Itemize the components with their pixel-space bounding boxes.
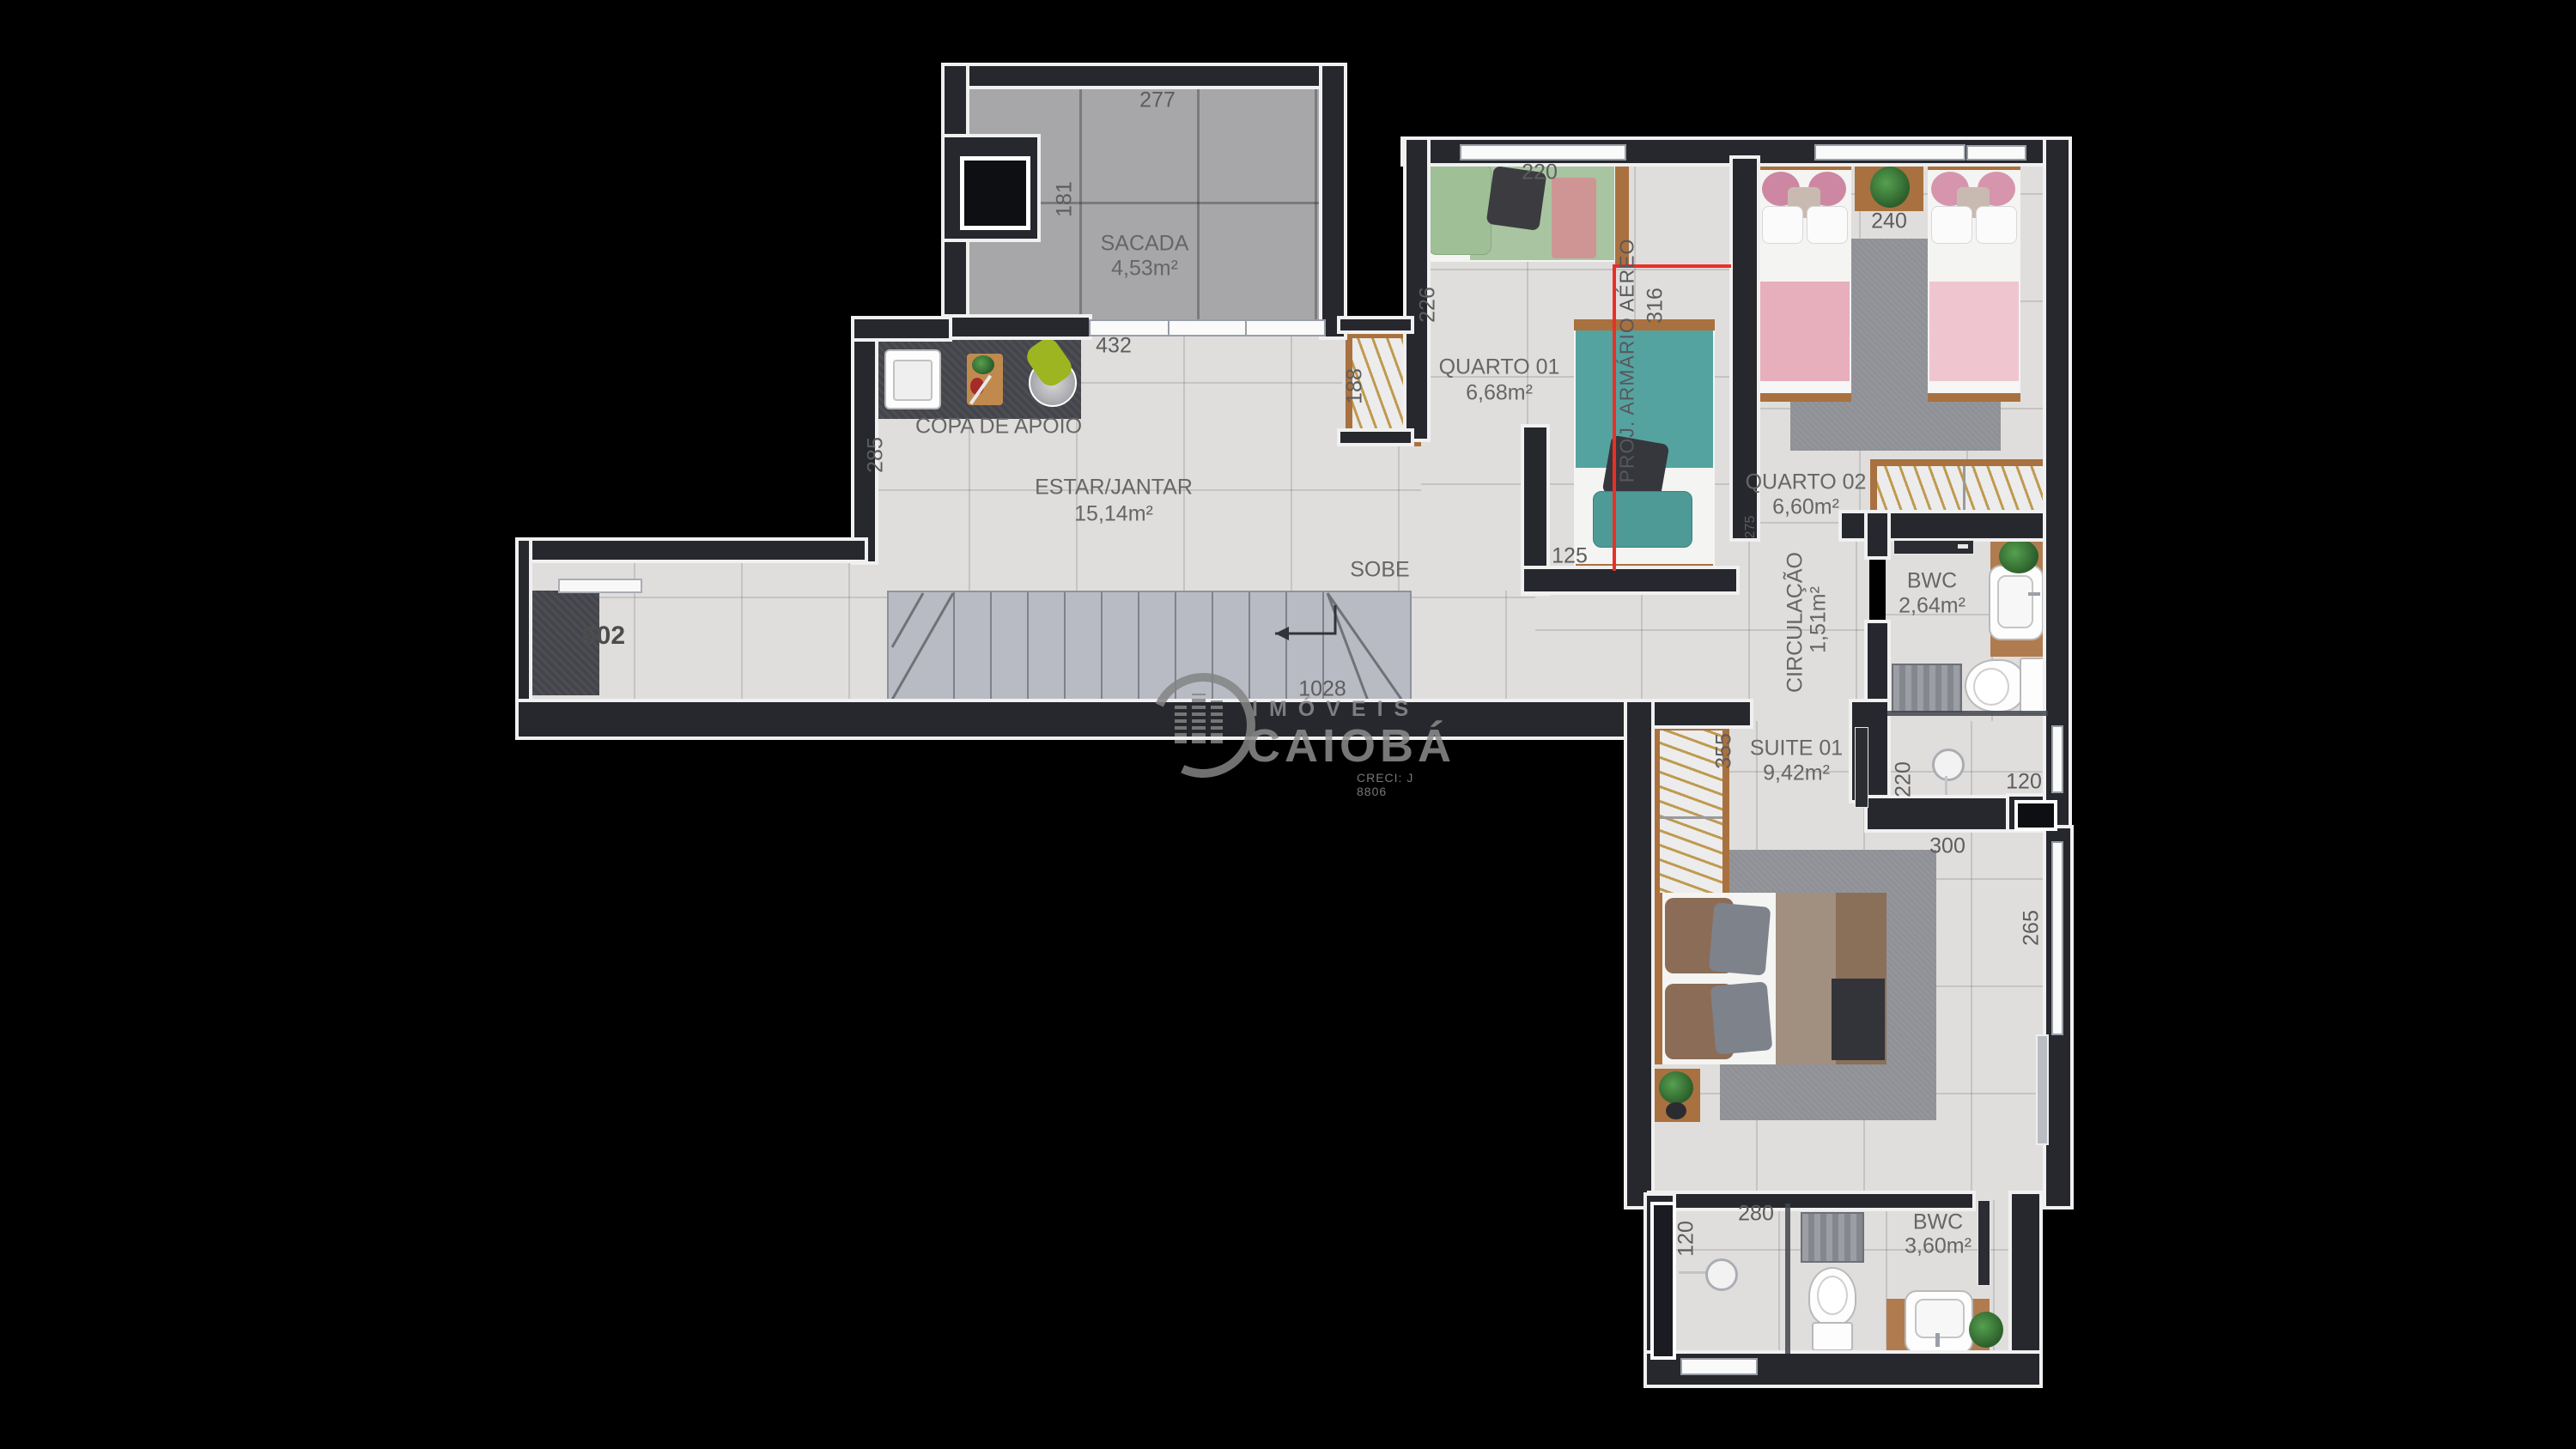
wall-balcony-top	[945, 66, 1344, 86]
watermark: IMÓVEIS CAIOBÁ CRECI: J 8806	[1151, 670, 1443, 781]
wall-bathroom1-left-upper	[1868, 513, 1887, 556]
bedroom2-window-2	[1966, 145, 2026, 161]
watermark-buildings-icon	[1192, 694, 1206, 743]
label-circulacao-name: CIRCULAÇÃO	[1783, 552, 1808, 693]
wall-copa-top	[854, 319, 949, 338]
dim-bwc2-width: 280	[1738, 1202, 1774, 1227]
bathroom2-window-left	[1650, 1202, 1676, 1360]
wall-suite-left	[1627, 702, 1651, 1206]
watermark-creci: CRECI: J 8806	[1357, 771, 1443, 798]
bedroom1-window	[1460, 144, 1626, 161]
bathroom2-sink-icon	[1905, 1290, 1973, 1354]
wall-bedroom1-lower-left	[1524, 427, 1546, 592]
bedroom2-bed-right	[1928, 161, 2020, 402]
bedroom2-window	[1814, 144, 1965, 161]
shaft-niche	[2014, 800, 2057, 831]
dim-sacada-door: 432	[1096, 334, 1132, 359]
label-circulacao-area: 1,51m²	[1807, 586, 1832, 653]
bathroom2-shower-glass	[1785, 1203, 1790, 1354]
wall-hall-top	[520, 541, 865, 560]
bathroom1-mat	[1892, 664, 1962, 712]
watermark-buildings-icon	[1175, 704, 1187, 743]
label-suite-name: SUITE 01	[1750, 737, 1843, 761]
dim-quarto2-door: 275	[1743, 516, 1759, 539]
herbs-on-board	[972, 355, 994, 374]
wall-closet-top	[1340, 319, 1411, 330]
suite-plant-icon	[1659, 1071, 1693, 1104]
suite-double-bed	[1651, 893, 1886, 1064]
bathroom2-toilet-tank	[1812, 1322, 1853, 1351]
label-estar-area: 15,14m²	[1074, 502, 1153, 527]
wall-bathroom1-left-lower	[1868, 623, 1887, 704]
dim-quarto2-beds: 240	[1871, 209, 1907, 234]
watermark-brand-top: IMÓVEIS	[1252, 697, 1419, 722]
bathroom2-plant-icon	[1969, 1312, 2003, 1348]
label-quarto1-name: QUARTO 01	[1439, 355, 1560, 380]
bathroom2-shower-icon	[1705, 1258, 1738, 1291]
balcony-duct-niche	[960, 156, 1030, 230]
dim-sacada-width: 277	[1139, 88, 1176, 113]
dim-bwc2-shower-width: 120	[1674, 1221, 1699, 1257]
label-sobe: SOBE	[1350, 558, 1409, 583]
dim-quarto1-depth: 226	[1416, 287, 1441, 323]
bathroom1-toilet-tank	[2020, 658, 2047, 714]
suite-window	[2051, 841, 2063, 1035]
watermark-brand-main: CAIOBÁ	[1247, 719, 1455, 773]
label-bwc2-area: 3,60m²	[1905, 1234, 1971, 1259]
dim-copa-depth: 285	[864, 437, 889, 473]
bathroom1-shower-glass	[1887, 711, 2048, 716]
dim-suite-closet: 355	[1712, 733, 1737, 769]
label-copa: COPA DE APOIO	[915, 415, 1082, 440]
kitchen-sink-bowl	[893, 360, 933, 401]
label-unit-number: 602	[582, 621, 625, 651]
suite-glass-door	[2036, 1034, 2049, 1145]
label-sacada-name: SACADA	[1101, 232, 1189, 257]
label-quarto2-area: 6,60m²	[1772, 495, 1839, 520]
bedroom2-bed-left	[1759, 161, 1851, 402]
suite-door-leaf	[1855, 727, 1868, 808]
label-bwc2-name: BWC	[1913, 1210, 1963, 1235]
bedroom2-plant-icon	[1870, 167, 1910, 208]
label-proj-armario: PROJ. ARMÁRIO AÉREO	[1616, 239, 1639, 483]
label-quarto2-name: QUARTO 02	[1746, 470, 1867, 495]
wall-bathroom1-bottom	[1868, 798, 2015, 829]
entry-door-leaf	[558, 579, 642, 593]
dim-armario-depth: 316	[1643, 288, 1668, 324]
wall-bedroom1-bottom	[1524, 569, 1736, 591]
dim-closet-width: 188	[1343, 368, 1368, 404]
label-bwc1-name: BWC	[1907, 569, 1957, 594]
dim-quarto1-bed: 220	[1522, 161, 1558, 185]
label-suite-area: 9,42m²	[1763, 761, 1830, 786]
wall-balcony-right	[1322, 66, 1344, 336]
dim-sacada-depth: 181	[1053, 181, 1078, 217]
suite-decor-icon	[1666, 1102, 1686, 1119]
bathroom2-door-leaf	[1978, 1200, 1990, 1286]
bathroom1-sink-icon	[1989, 565, 2044, 640]
label-quarto1-area: 6,68m²	[1466, 381, 1533, 406]
bathroom2-mat	[1801, 1212, 1864, 1263]
bathroom1-shower-icon	[1932, 749, 1965, 781]
label-estar-name: ESTAR/JANTAR	[1035, 476, 1193, 500]
label-bwc1-area: 2,64m²	[1899, 594, 1965, 619]
wall-balcony-bottom	[945, 318, 1089, 336]
watermark-buildings-icon	[1211, 700, 1223, 743]
bathroom1-window	[2051, 725, 2063, 793]
dim-suite-width: 300	[1929, 834, 1965, 859]
bathroom1-plant-icon	[1999, 539, 2038, 573]
dim-bwc1-shower-depth: 220	[1892, 761, 1917, 797]
wall-living-bottom	[519, 702, 1635, 737]
wall-bathroom2-top	[1650, 1194, 1972, 1208]
dim-suite-depth: 265	[2020, 910, 2044, 946]
bathroom1-toilet-icon	[1965, 659, 2025, 712]
label-sacada-area: 4,53m²	[1111, 257, 1178, 282]
bathroom1-door-leaf	[1893, 540, 1974, 555]
bathroom2-toilet-icon	[1808, 1267, 1856, 1325]
floor-plan: SACADA 4,53m² 277 181 432 COPA DE APOIO …	[0, 0, 2576, 1449]
dim-bwc1-shower-width: 120	[2006, 770, 2042, 795]
bathroom2-window-bottom	[1680, 1358, 1758, 1375]
wall-closet-bottom	[1340, 432, 1411, 443]
bedroom1-single-bed-teal	[1574, 319, 1715, 573]
dim-quarto1-recess: 125	[1552, 544, 1588, 569]
